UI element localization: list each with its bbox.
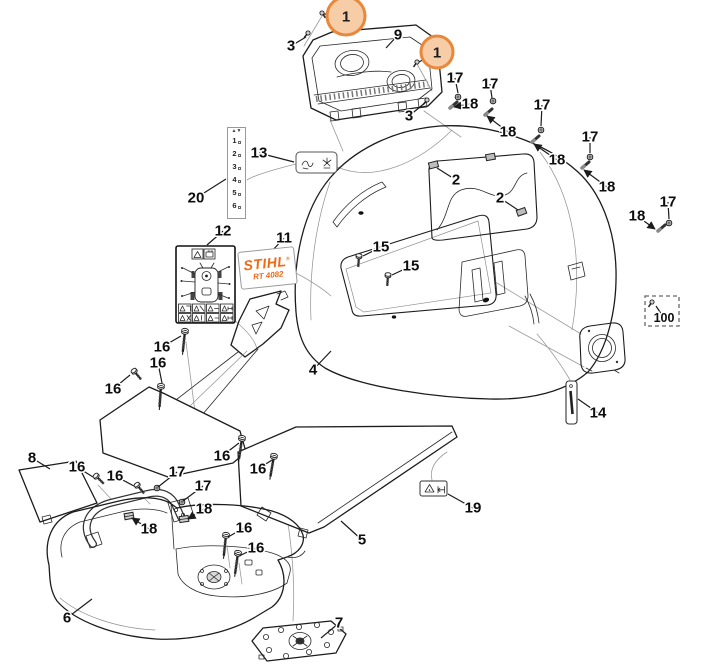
brand-logo-text: STIHL® [243,254,291,273]
part-7-plate [252,621,346,661]
height-tick: 5 [232,186,240,199]
part-number-callout[interactable]: 16 [107,468,124,485]
part-number-callout[interactable]: 17 [195,478,212,495]
part-number-callout[interactable]: 17 [582,129,599,146]
part-number-callout[interactable]: 12 [215,223,232,240]
part-number-callout[interactable]: 18 [500,124,517,141]
screw-icon [130,367,143,381]
part-number-callout[interactable]: 17 [660,194,677,211]
height-tick: 1 [232,134,240,147]
part-number-callout[interactable]: 18 [462,96,479,113]
model-number-text: RT 4082 [253,270,284,281]
part-number-callout[interactable]: 2 [496,190,504,207]
height-tick: 2 [232,147,240,160]
height-tick: 4 [232,173,240,186]
part-number-callout[interactable]: 100 [654,311,675,325]
part-number-callout[interactable]: 18 [141,521,158,538]
stud-icon [532,136,539,142]
part-number-callout[interactable]: 17 [169,464,186,481]
callout-leader-lines [32,35,669,638]
nut-icon [587,154,593,160]
part-number-callout[interactable]: 7 [335,615,343,632]
part-number-callout[interactable]: 3 [287,38,295,55]
part-number-callout[interactable]: 16 [236,520,253,537]
stud-icon [485,109,492,115]
highlighted-part-number[interactable]: 1 [342,9,350,26]
part-number-callout[interactable]: 18 [549,152,566,169]
part-number-callout[interactable]: 18 [196,501,213,518]
parts-diagram-canvas: 3931718171817181718171822132012111515410… [0,0,710,664]
height-tick: 6 [232,199,240,212]
highlighted-part-number[interactable]: 1 [433,45,441,62]
height-tick: 3 [232,160,240,173]
label-12-instruction [176,246,235,323]
part-14-strip [566,381,577,424]
part-number-callout[interactable]: 16 [214,448,231,465]
part-number-callout[interactable]: 9 [394,27,402,44]
nut-icon [455,94,461,100]
cutting-height-strip-label: ▲▼ 123456 [227,127,246,219]
part-number-callout[interactable]: 6 [63,610,71,627]
part-number-callout[interactable]: 17 [534,97,551,114]
part-number-callout[interactable]: 11 [276,230,292,247]
part-number-callout[interactable]: 18 [629,208,646,225]
part-number-callout[interactable]: 19 [465,500,482,517]
part-number-callout[interactable]: 13 [251,145,268,162]
clip-icon [179,515,189,522]
screw-icon [92,472,106,486]
part-number-callout[interactable]: 16 [154,339,171,356]
part-number-callout[interactable]: 16 [105,381,122,398]
stihl-model-label: STIHL® RT 4082 [237,246,298,290]
exploded-parts-drawing: 3931718171817181718171822132012111515410… [0,0,710,664]
part-number-callout[interactable]: 4 [309,362,318,379]
part-number-callout[interactable]: 16 [69,459,86,476]
part-number-callout[interactable]: 17 [482,76,499,93]
part-number-callout[interactable]: 15 [403,258,420,275]
part-number-callout[interactable]: 2 [452,172,460,189]
part-number-callout[interactable]: 16 [250,461,267,478]
stud-icon [582,162,589,168]
part-number-callout[interactable]: 16 [248,540,265,557]
part-number-callout[interactable]: 20 [188,190,205,207]
nut-icon [538,127,544,133]
part-number-callout[interactable]: 17 [447,70,464,87]
nut-icon [666,220,672,226]
part-number-callout[interactable]: 16 [150,355,167,372]
stud-icon [658,225,665,231]
label-13-pictogram [296,152,337,173]
part-number-callout[interactable]: 15 [373,239,390,256]
label-19-pictogram [420,481,447,496]
screw-icon [303,30,311,39]
part-number-callout[interactable]: 18 [599,179,616,196]
screw-icon [384,272,391,286]
part-number-callout[interactable]: 8 [28,450,36,467]
part-number-callout[interactable]: 3 [405,108,413,125]
assembly-guide-lines [98,16,584,621]
registered-mark: ® [286,256,291,262]
nut-icon [490,98,496,104]
part-number-callout[interactable]: 5 [358,532,366,549]
part-number-callout[interactable]: 14 [590,405,607,422]
